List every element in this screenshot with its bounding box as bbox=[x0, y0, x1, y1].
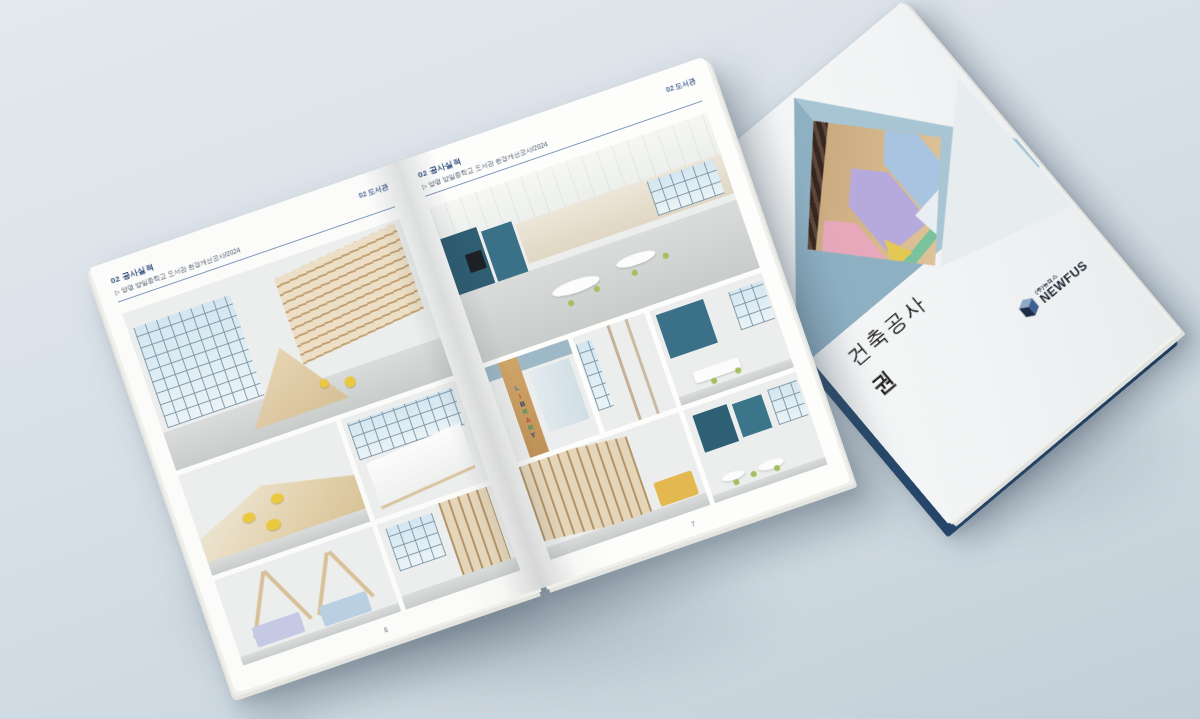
newfus-logo: (주)뉴퍼스 NEWFUS bbox=[1015, 253, 1092, 322]
mockup-scene: 건축공사 권 (주)뉴퍼스 NEWFUS 02 공사실적 bbox=[0, 0, 1200, 719]
logo-text: (주)뉴퍼스 NEWFUS bbox=[1033, 254, 1091, 307]
